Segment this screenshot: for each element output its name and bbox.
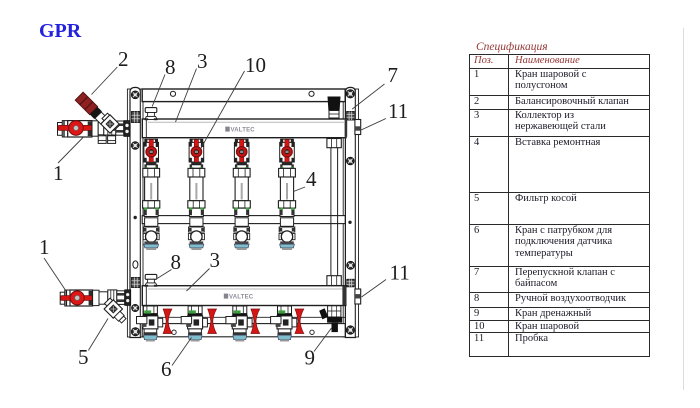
svg-text:9: 9: [305, 346, 316, 370]
svg-text:6: 6: [161, 357, 172, 381]
svg-text:11: 11: [390, 261, 410, 285]
svg-text:2: 2: [118, 47, 129, 71]
svg-text:3: 3: [197, 49, 208, 73]
svg-text:8: 8: [165, 55, 176, 79]
svg-text:1: 1: [39, 235, 50, 259]
svg-text:11: 11: [388, 99, 408, 123]
svg-text:10: 10: [245, 53, 266, 77]
svg-text:3: 3: [210, 248, 221, 272]
svg-text:4: 4: [306, 167, 317, 191]
svg-text:7: 7: [388, 63, 399, 87]
svg-text:VALTEC: VALTEC: [231, 127, 256, 133]
svg-text:8: 8: [171, 250, 182, 274]
svg-text:VALTEC: VALTEC: [229, 294, 254, 300]
svg-text:1: 1: [53, 161, 64, 185]
svg-text:5: 5: [78, 345, 89, 369]
